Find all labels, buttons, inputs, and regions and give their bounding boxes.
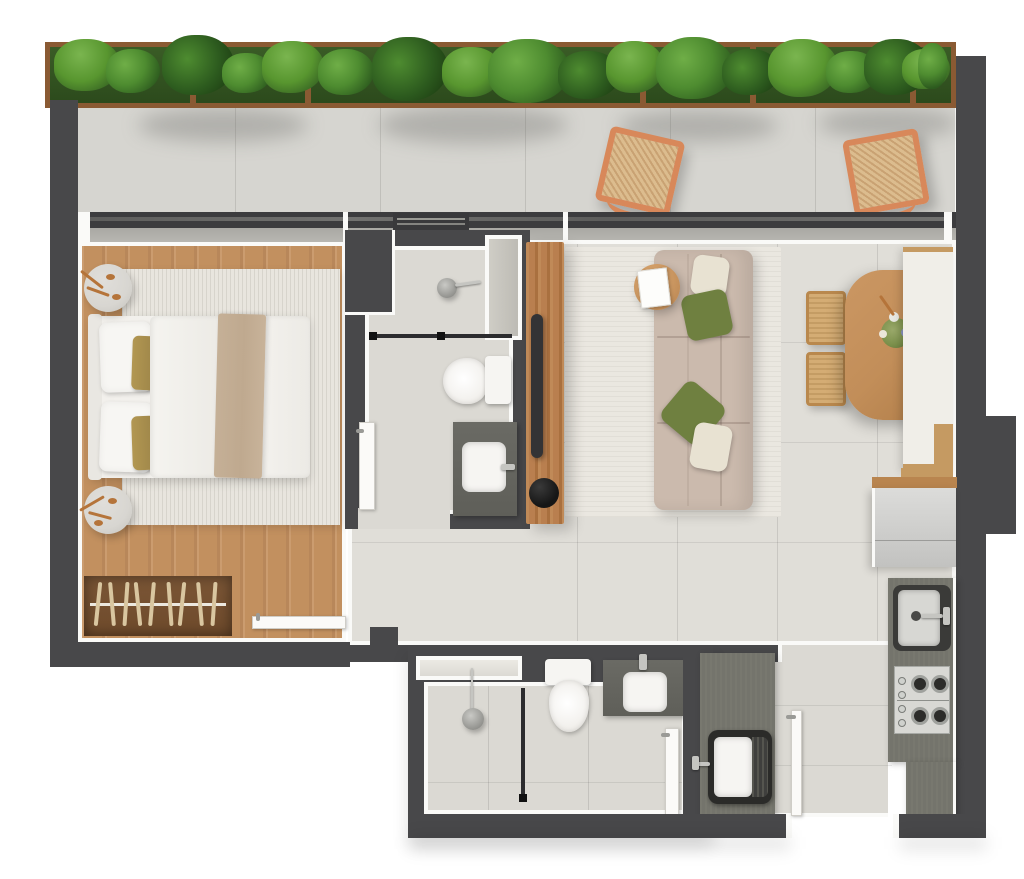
wall-bedroom-bottom bbox=[50, 642, 350, 667]
duct-shaft bbox=[485, 235, 522, 340]
bedroom-door bbox=[252, 616, 346, 629]
plant-shadow bbox=[378, 106, 568, 144]
table-lamp bbox=[80, 270, 104, 290]
tile-joint bbox=[428, 782, 682, 783]
bathroom-window bbox=[393, 213, 469, 230]
cushion-green bbox=[680, 288, 735, 343]
bathroom-bottom-door bbox=[665, 728, 679, 816]
wall-stub bbox=[370, 627, 398, 647]
door-jamb bbox=[893, 814, 899, 838]
door-jamb bbox=[786, 814, 792, 838]
table-lamp bbox=[79, 495, 105, 512]
lamp-leaf bbox=[106, 274, 115, 280]
cooktop-divider bbox=[897, 700, 949, 701]
faucet bbox=[921, 614, 943, 618]
dining-chair bbox=[806, 352, 846, 406]
faucet bbox=[501, 464, 515, 470]
vanity-counter bbox=[453, 422, 517, 516]
tile-joint bbox=[352, 542, 952, 543]
bush bbox=[262, 41, 324, 93]
double-bed bbox=[88, 314, 310, 480]
plant-shadow bbox=[138, 108, 308, 142]
sink-drain bbox=[911, 611, 921, 621]
cooktop bbox=[894, 666, 950, 734]
toilet-tank bbox=[485, 356, 511, 404]
laundry-basin bbox=[714, 737, 752, 797]
sink-basin bbox=[462, 442, 506, 492]
decor-bowl bbox=[529, 478, 559, 508]
shower-hose bbox=[471, 668, 473, 712]
planter-box bbox=[45, 42, 956, 108]
glass-hinge bbox=[369, 332, 377, 340]
window-glass bbox=[397, 218, 465, 220]
bedroom-floor bbox=[78, 242, 346, 642]
tile-joint bbox=[815, 106, 816, 212]
bush bbox=[318, 49, 374, 95]
lounge-chair-right bbox=[842, 128, 930, 216]
wall-right bbox=[956, 56, 986, 820]
wall-right-block bbox=[984, 416, 1016, 534]
table-lamp bbox=[88, 511, 112, 520]
burner bbox=[911, 675, 929, 693]
floor-plan bbox=[0, 0, 1024, 879]
toilet-bowl bbox=[443, 358, 489, 404]
exterior-shadow bbox=[410, 836, 790, 850]
doorway bbox=[358, 508, 450, 529]
balcony-floor bbox=[75, 106, 959, 212]
cooktop-knob bbox=[898, 691, 906, 699]
kitchen-sink bbox=[893, 585, 951, 651]
refrigerator bbox=[872, 488, 956, 567]
wall-cap bbox=[563, 212, 568, 242]
dining-chair bbox=[806, 291, 846, 345]
shower-head bbox=[437, 278, 457, 298]
tv-panel bbox=[526, 242, 564, 524]
window-glass bbox=[397, 223, 465, 225]
glass-hinge bbox=[437, 332, 445, 340]
faucet bbox=[639, 654, 647, 670]
tile-joint bbox=[488, 686, 489, 810]
sink-basin bbox=[623, 672, 667, 712]
wall-chunk bbox=[345, 230, 395, 315]
bathroom-top bbox=[345, 230, 530, 529]
burner bbox=[931, 707, 949, 725]
side-table bbox=[84, 486, 132, 534]
wall-bottom-left bbox=[408, 814, 792, 838]
vanity-counter bbox=[603, 660, 685, 716]
book bbox=[637, 267, 671, 308]
flower bbox=[879, 330, 887, 338]
counter-wood-edge bbox=[872, 477, 957, 488]
wardrobe bbox=[84, 576, 232, 636]
shower-glass bbox=[521, 688, 525, 800]
glass-hinge bbox=[519, 794, 527, 802]
laundry-sink bbox=[708, 730, 772, 804]
bush bbox=[372, 37, 448, 101]
wall-cap bbox=[944, 212, 952, 242]
faucet-base bbox=[943, 607, 950, 625]
faucet-base bbox=[692, 756, 699, 770]
shower-head bbox=[462, 708, 484, 730]
coffee-table bbox=[634, 264, 680, 310]
sofa-seam bbox=[687, 254, 689, 506]
bush bbox=[106, 49, 160, 93]
cooktop-knob bbox=[898, 677, 906, 685]
exterior-shadow bbox=[900, 836, 986, 850]
wall-cap bbox=[78, 212, 90, 242]
cushion-cream bbox=[688, 421, 733, 473]
shower-niche bbox=[416, 656, 522, 680]
wall-bottom-right bbox=[898, 814, 986, 838]
table-lamp bbox=[86, 286, 110, 297]
bench-wood-frame bbox=[934, 424, 953, 468]
wall-left bbox=[50, 100, 78, 660]
door-handle bbox=[661, 733, 670, 737]
cooktop-knob bbox=[898, 705, 906, 713]
flower-stem bbox=[879, 295, 895, 316]
throw-blanket bbox=[214, 313, 266, 478]
tv bbox=[531, 314, 543, 458]
bench-wood-frame bbox=[901, 468, 953, 477]
lamp-leaf bbox=[112, 294, 121, 300]
sliding-door-track bbox=[78, 212, 956, 228]
door-handle bbox=[256, 613, 260, 621]
side-table bbox=[84, 264, 132, 312]
lamp-leaf bbox=[94, 520, 103, 526]
door-handle bbox=[786, 715, 796, 719]
burner bbox=[931, 675, 949, 693]
bathroom-bottom bbox=[408, 646, 713, 836]
bathroom-top-door bbox=[359, 422, 375, 510]
cooktop-knob bbox=[898, 719, 906, 727]
kitchen-counter-lower bbox=[906, 762, 956, 816]
entry-door bbox=[791, 710, 802, 816]
lamp-leaf bbox=[108, 498, 117, 504]
burner bbox=[911, 707, 929, 725]
drying-ribs bbox=[752, 737, 768, 797]
door-handle bbox=[356, 429, 364, 433]
